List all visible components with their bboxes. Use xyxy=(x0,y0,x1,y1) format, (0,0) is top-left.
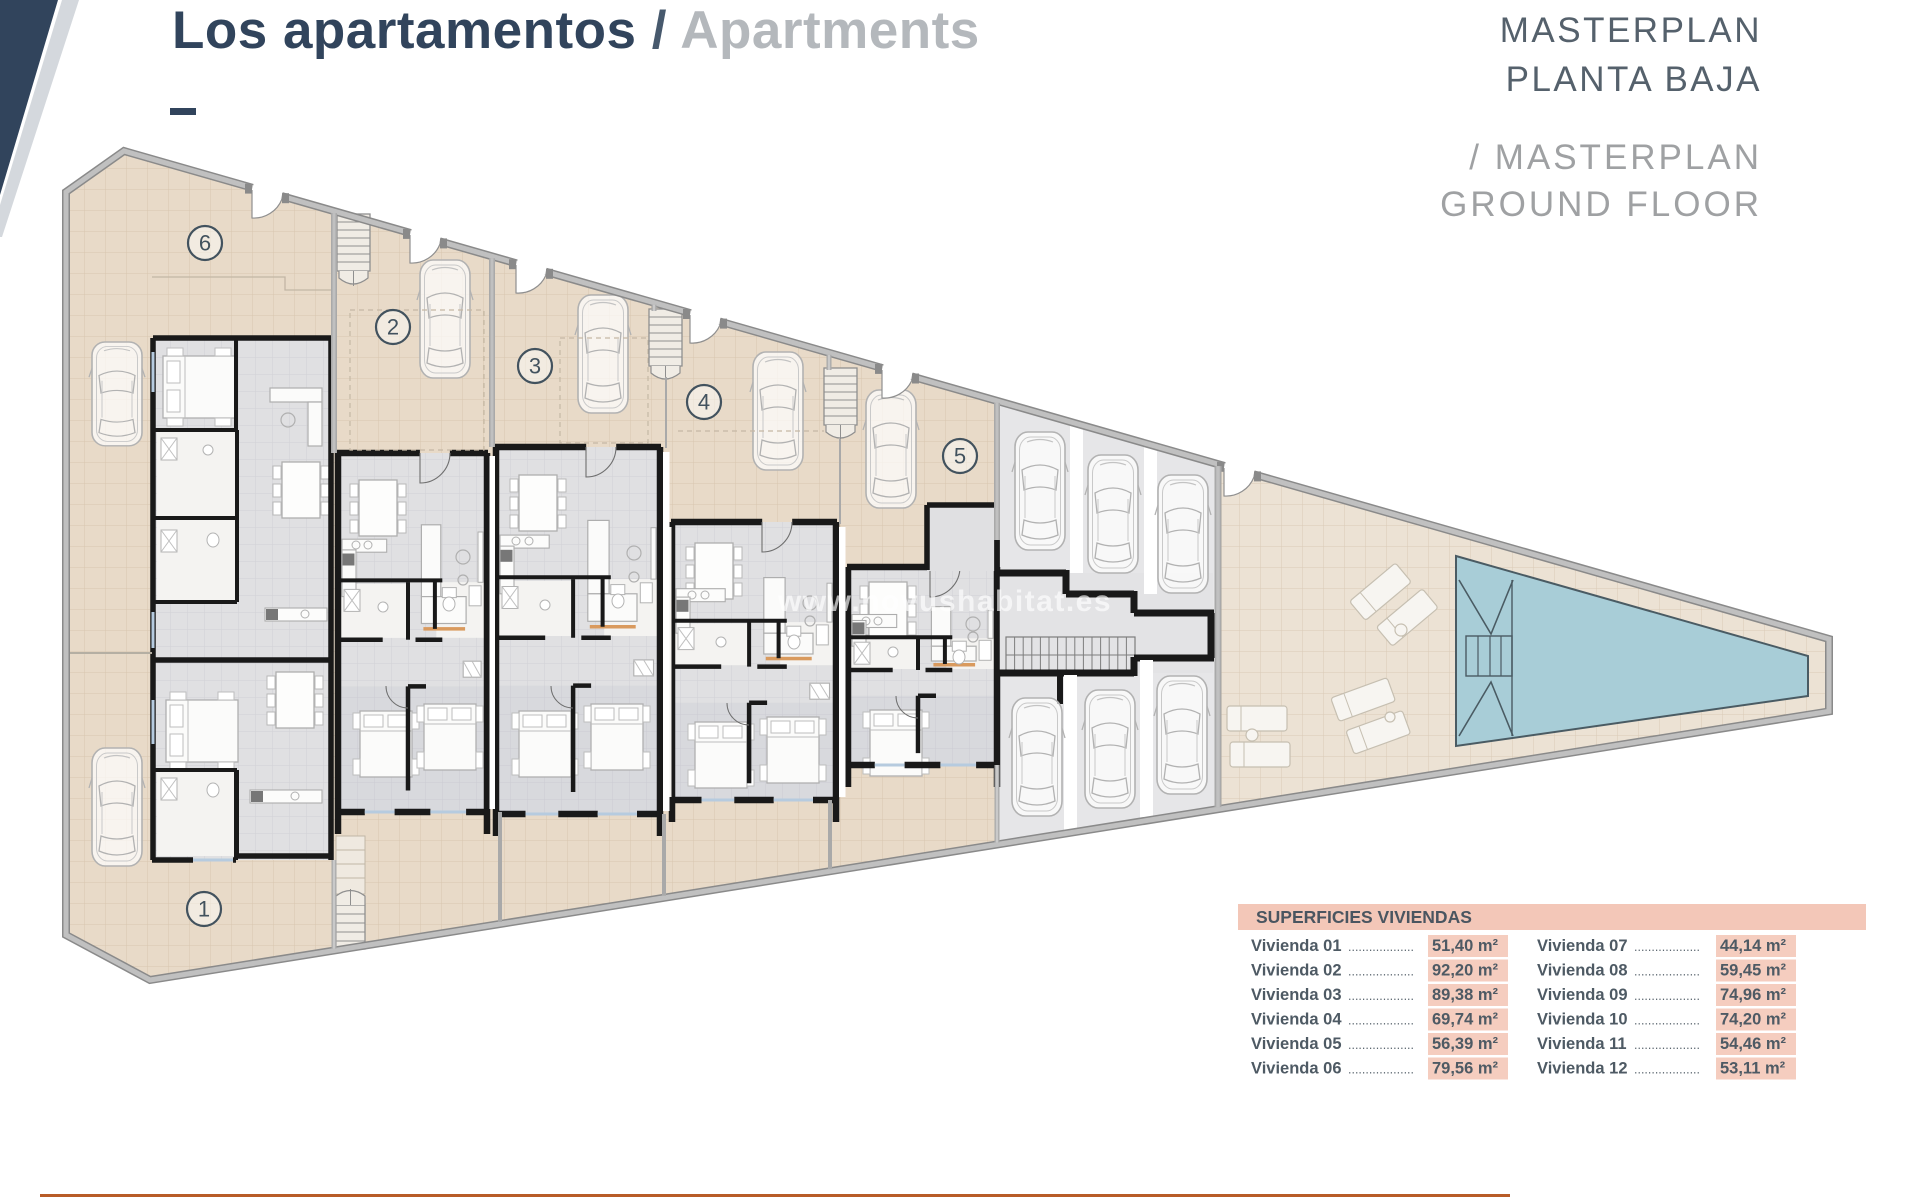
svg-text:...................: ................... xyxy=(1634,940,1700,954)
svg-text:Vivienda 06: Vivienda 06 xyxy=(1251,1060,1342,1078)
svg-text:89,38 m²: 89,38 m² xyxy=(1432,986,1499,1004)
svg-text:...................: ................... xyxy=(1348,1014,1414,1028)
svg-text:...................: ................... xyxy=(1348,1063,1414,1077)
svg-text:Vivienda 09: Vivienda 09 xyxy=(1537,986,1628,1004)
svg-text:...................: ................... xyxy=(1348,1038,1414,1052)
svg-text:74,20 m²: 74,20 m² xyxy=(1720,1011,1787,1029)
svg-text:...................: ................... xyxy=(1634,1038,1700,1052)
svg-text:www.novushabitat.es: www.novushabitat.es xyxy=(777,585,1112,618)
svg-text:Vivienda 12: Vivienda 12 xyxy=(1537,1060,1628,1078)
svg-text:Vivienda 10: Vivienda 10 xyxy=(1537,1011,1628,1029)
svg-text:4: 4 xyxy=(698,390,710,415)
svg-text:...................: ................... xyxy=(1348,989,1414,1003)
svg-text:2: 2 xyxy=(387,315,399,340)
svg-text:92,20 m²: 92,20 m² xyxy=(1432,962,1499,980)
svg-text:Vivienda 03: Vivienda 03 xyxy=(1251,986,1342,1004)
svg-text:Vivienda 05: Vivienda 05 xyxy=(1251,1035,1342,1053)
svg-text:...................: ................... xyxy=(1348,940,1414,954)
svg-text:53,11 m²: 53,11 m² xyxy=(1720,1060,1786,1078)
svg-text:6: 6 xyxy=(199,231,211,256)
svg-text:SUPERFICIES VIVIENDAS: SUPERFICIES VIVIENDAS xyxy=(1256,907,1472,927)
svg-text:...................: ................... xyxy=(1634,965,1700,979)
svg-text:3: 3 xyxy=(529,354,541,379)
svg-text:69,74 m²: 69,74 m² xyxy=(1432,1011,1499,1029)
svg-text:GROUND FLOOR: GROUND FLOOR xyxy=(1440,185,1762,224)
svg-text:...................: ................... xyxy=(1348,965,1414,979)
svg-text:59,45 m²: 59,45 m² xyxy=(1720,962,1787,980)
svg-text:Vivienda 01: Vivienda 01 xyxy=(1251,937,1342,955)
svg-text:Los apartamentos / Apartments: Los apartamentos / Apartments xyxy=(172,1,980,60)
svg-text:PLANTA BAJA: PLANTA BAJA xyxy=(1506,60,1762,99)
svg-text:Vivienda 11: Vivienda 11 xyxy=(1537,1035,1627,1053)
svg-text:5: 5 xyxy=(954,444,966,469)
svg-text:Vivienda 08: Vivienda 08 xyxy=(1537,962,1628,980)
svg-text:Vivienda 02: Vivienda 02 xyxy=(1251,962,1342,980)
svg-text:1: 1 xyxy=(198,897,210,922)
svg-text:...................: ................... xyxy=(1634,1063,1700,1077)
svg-text:Vivienda 04: Vivienda 04 xyxy=(1251,1011,1342,1029)
svg-text:44,14 m²: 44,14 m² xyxy=(1720,937,1787,955)
svg-text:Vivienda 07: Vivienda 07 xyxy=(1537,937,1628,955)
svg-text:MASTERPLAN: MASTERPLAN xyxy=(1500,11,1762,50)
svg-text:74,96 m²: 74,96 m² xyxy=(1720,986,1787,1004)
svg-text:/ MASTERPLAN: / MASTERPLAN xyxy=(1469,138,1762,177)
svg-text:56,39 m²: 56,39 m² xyxy=(1432,1035,1499,1053)
svg-text:...................: ................... xyxy=(1634,989,1700,1003)
svg-text:54,46 m²: 54,46 m² xyxy=(1720,1035,1787,1053)
svg-text:79,56 m²: 79,56 m² xyxy=(1432,1060,1499,1078)
svg-text:51,40 m²: 51,40 m² xyxy=(1432,937,1499,955)
svg-text:...................: ................... xyxy=(1634,1014,1700,1028)
